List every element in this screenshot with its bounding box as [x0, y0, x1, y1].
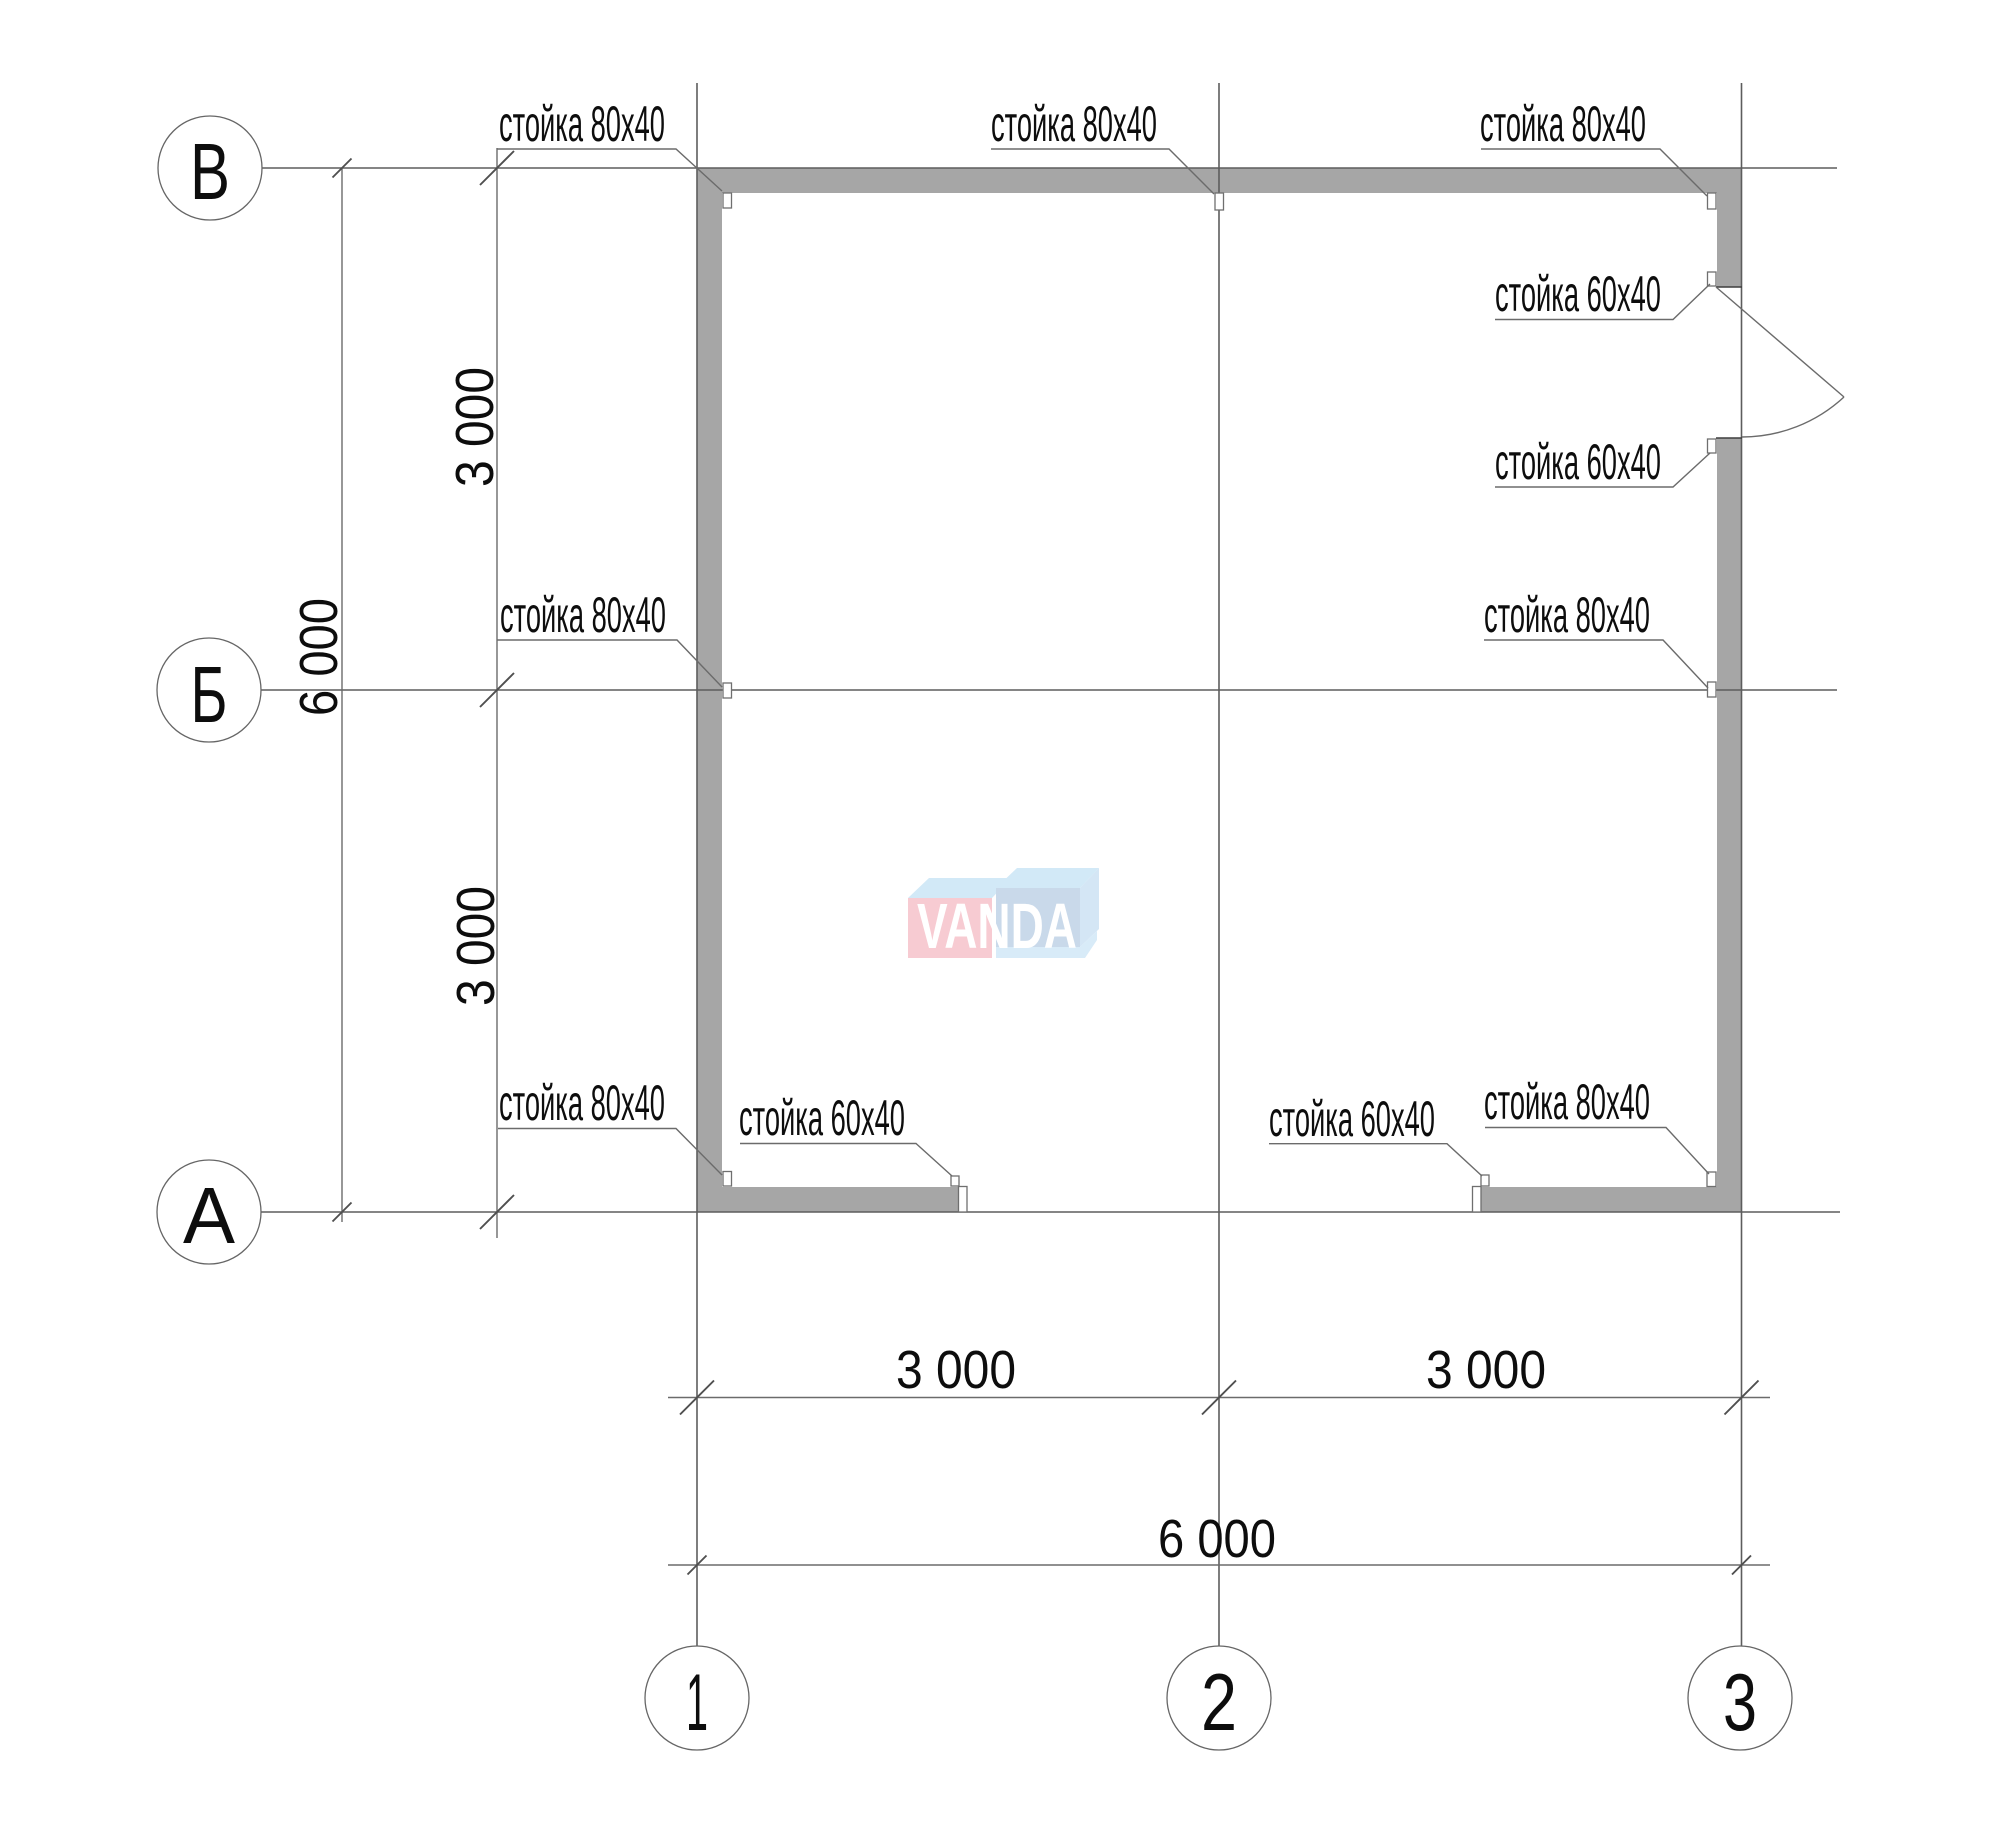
svg-text:VANDA: VANDA	[917, 890, 1077, 962]
svg-text:стойка 80х40: стойка 80х40	[991, 96, 1157, 152]
svg-text:3 000: 3 000	[446, 886, 506, 1006]
svg-text:3 000: 3 000	[1426, 1340, 1546, 1400]
svg-text:стойка 80х40: стойка 80х40	[1484, 1074, 1650, 1130]
svg-text:стойка 60х40: стойка 60х40	[1269, 1091, 1435, 1147]
svg-text:6 000: 6 000	[1158, 1509, 1276, 1569]
svg-text:стойка 60х40: стойка 60х40	[739, 1090, 905, 1146]
svg-text:стойка 60х40: стойка 60х40	[1495, 434, 1661, 490]
svg-text:стойка 60х40: стойка 60х40	[1495, 266, 1661, 322]
svg-text:3: 3	[1723, 1658, 1757, 1748]
svg-text:стойка 80х40: стойка 80х40	[499, 1075, 665, 1131]
svg-text:3 000: 3 000	[445, 367, 505, 487]
svg-text:стойка 80х40: стойка 80х40	[500, 587, 666, 643]
svg-text:стойка 80х40: стойка 80х40	[1480, 96, 1646, 152]
svg-text:2: 2	[1201, 1658, 1237, 1748]
svg-text:6 000: 6 000	[289, 598, 349, 716]
svg-text:стойка 80х40: стойка 80х40	[1484, 587, 1650, 643]
svg-text:стойка 80х40: стойка 80х40	[499, 96, 665, 152]
svg-text:Б: Б	[191, 650, 228, 739]
svg-text:3 000: 3 000	[896, 1340, 1016, 1400]
svg-text:А: А	[183, 1171, 236, 1260]
svg-text:В: В	[190, 127, 230, 216]
svg-text:1: 1	[686, 1658, 708, 1748]
